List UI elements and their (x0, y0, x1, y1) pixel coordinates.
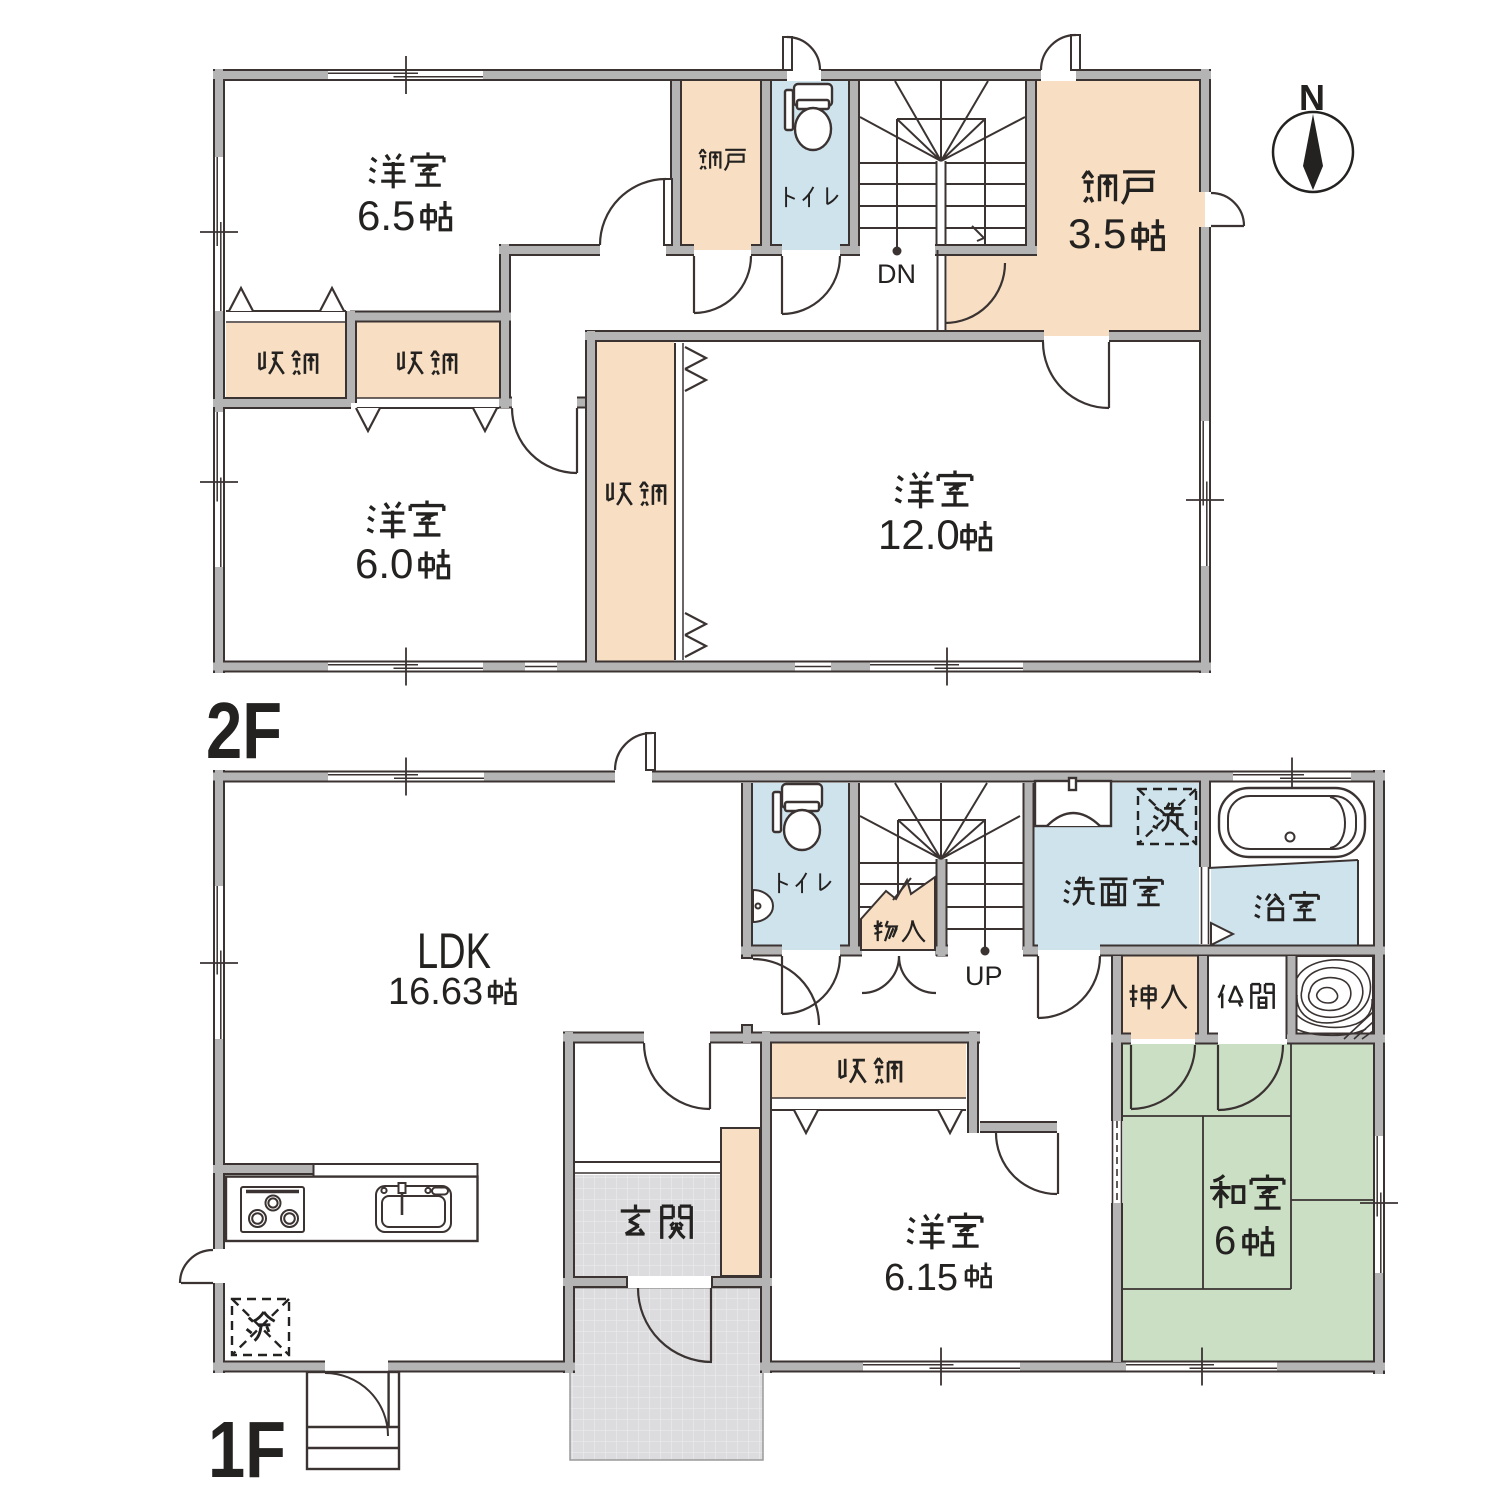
svg-text:DN: DN (877, 259, 916, 289)
svg-text:1F: 1F (208, 1405, 286, 1494)
svg-text:16.63: 16.63 (388, 971, 483, 1013)
svg-text:UP: UP (965, 961, 1003, 991)
svg-text:N: N (1299, 77, 1325, 118)
svg-text:6.15: 6.15 (884, 1257, 958, 1299)
svg-text:6: 6 (1214, 1219, 1236, 1263)
svg-text:2F: 2F (206, 686, 282, 775)
svg-text:12.0: 12.0 (878, 511, 960, 558)
svg-text:6.5: 6.5 (357, 192, 415, 239)
svg-text:3.5: 3.5 (1068, 210, 1126, 257)
svg-text:6.0: 6.0 (355, 540, 413, 587)
